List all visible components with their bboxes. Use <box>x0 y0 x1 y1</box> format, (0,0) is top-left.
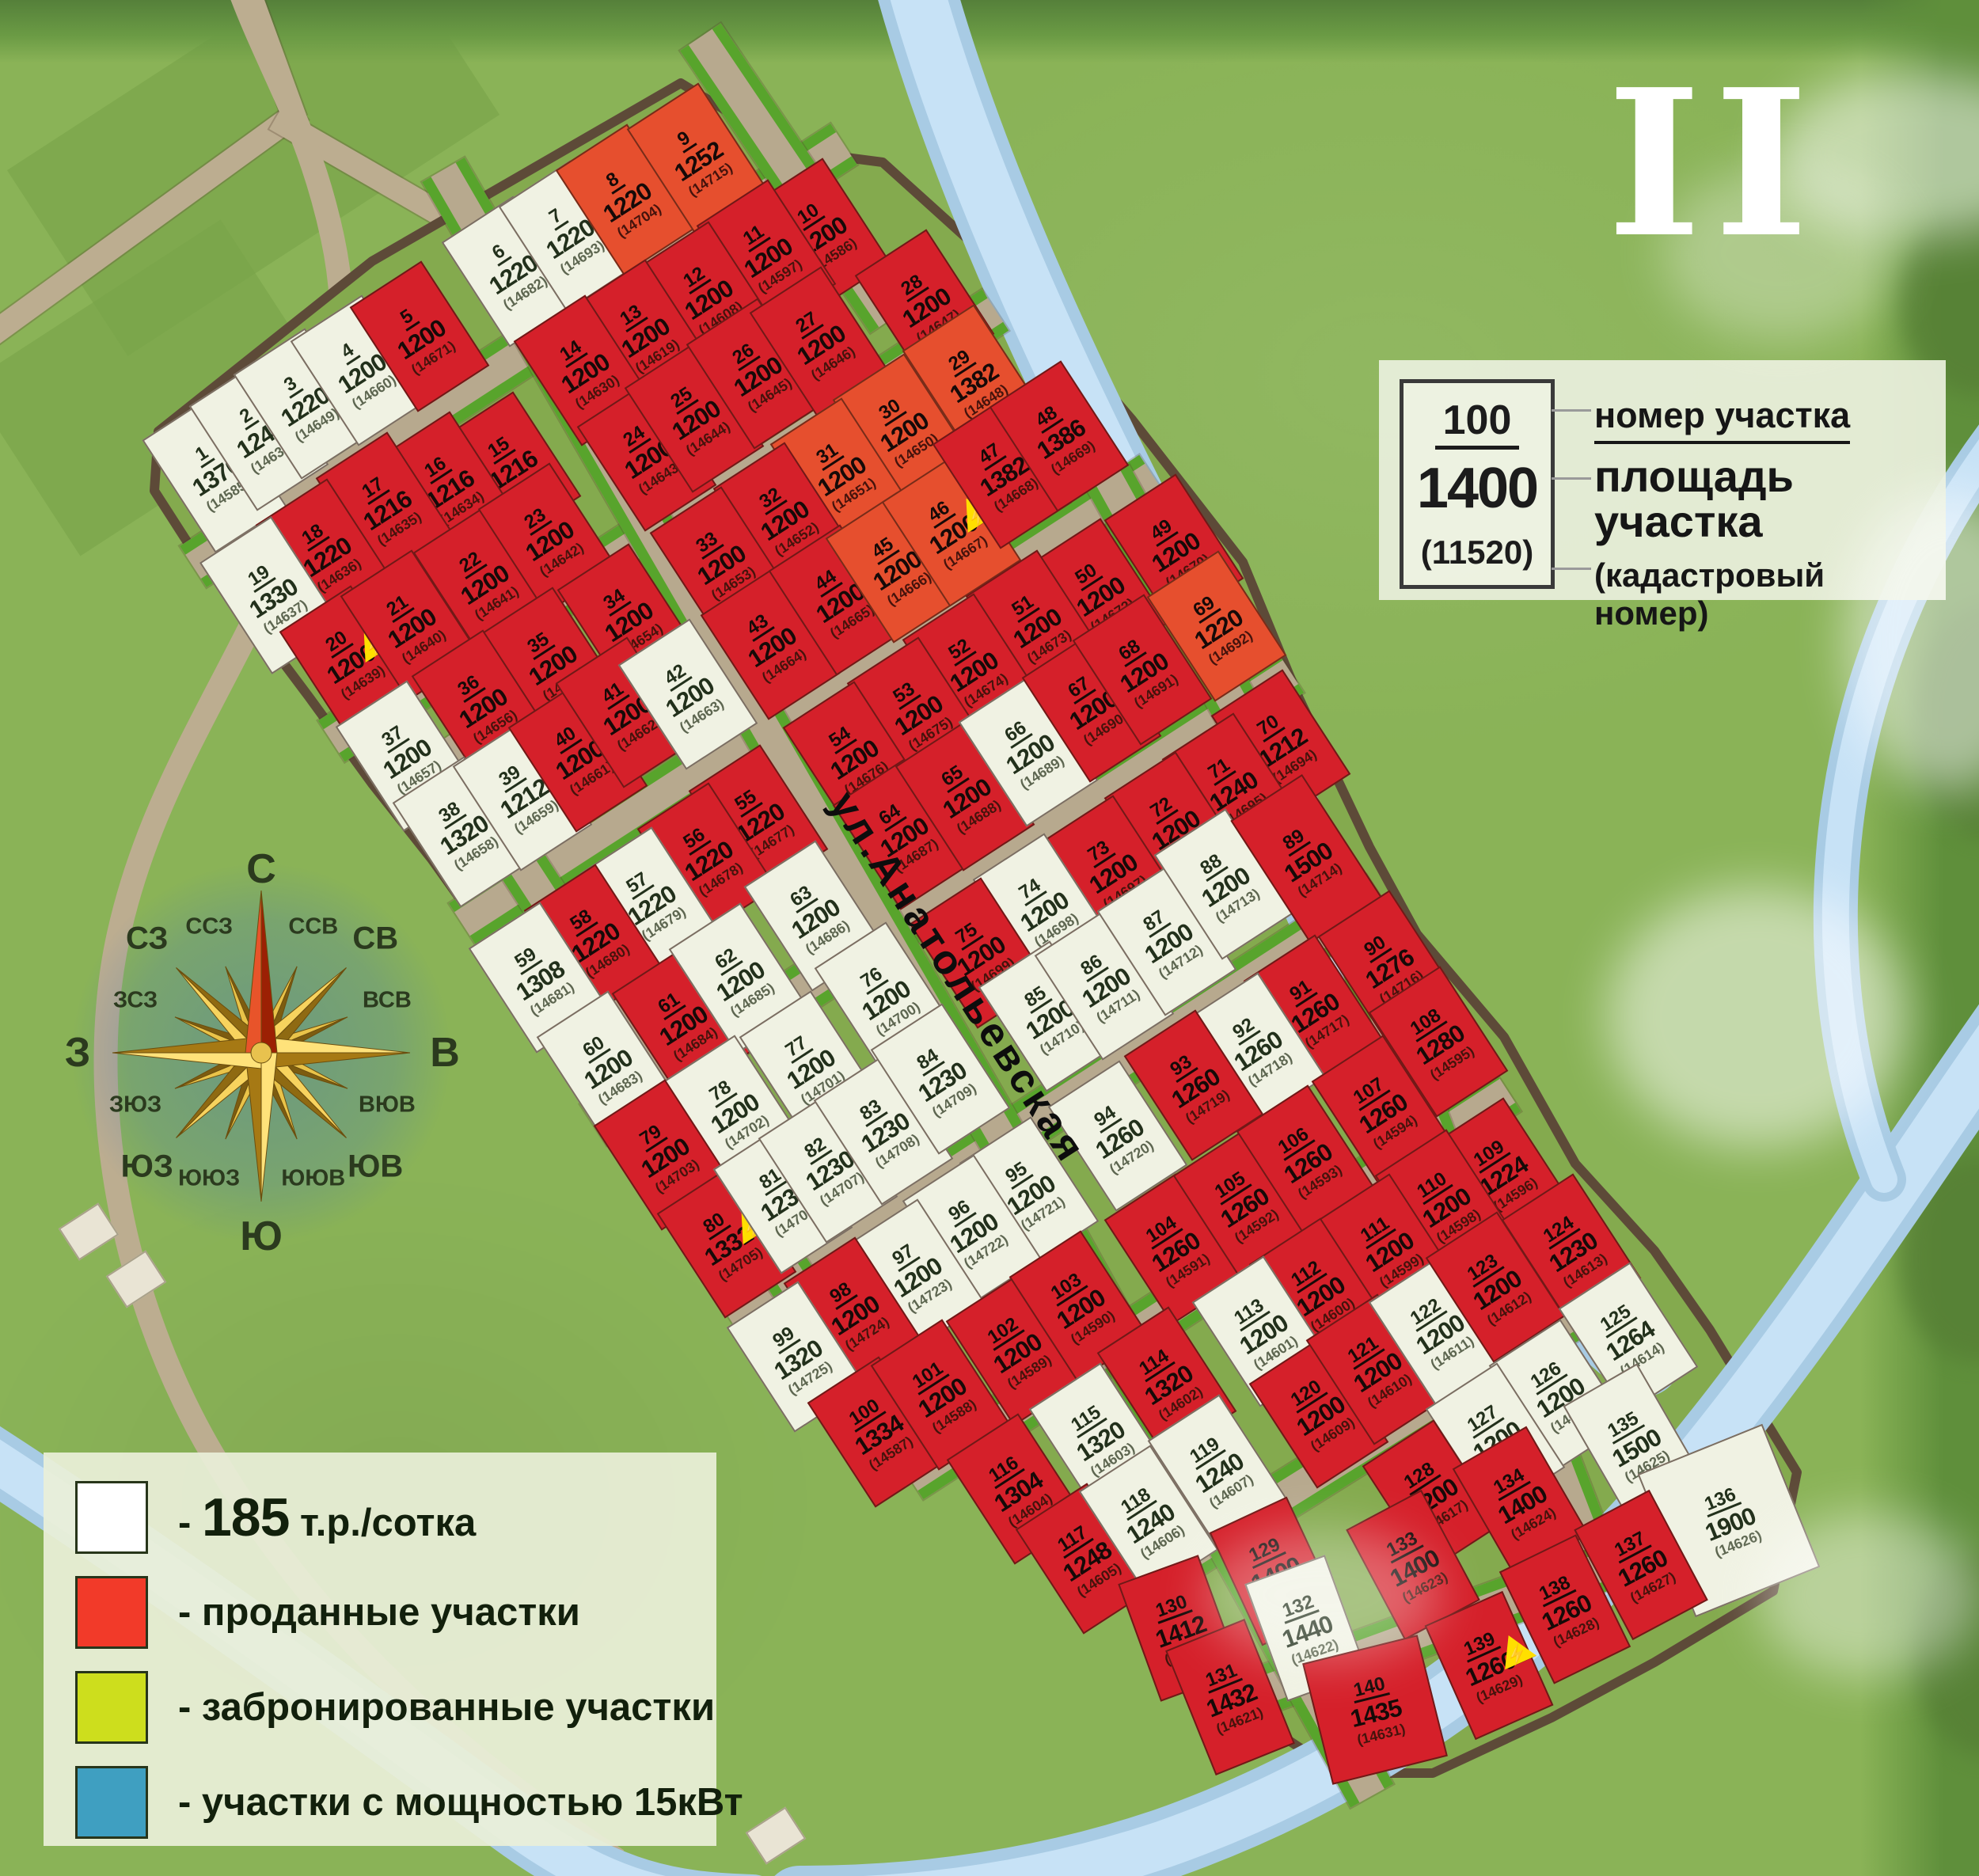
compass-label-ЮЮВ: ЮЮВ <box>281 1165 345 1191</box>
compass-label-З: З <box>65 1029 91 1077</box>
plot-140[interactable]: 1401435(14631) <box>1302 1635 1448 1785</box>
phase-numeral: II <box>1607 63 1821 265</box>
compass-label-ВСВ: ВСВ <box>363 988 412 1014</box>
legend-item: - участки с мощностью 15кВт <box>75 1766 743 1839</box>
compass-label-ССЗ: ССЗ <box>185 914 233 940</box>
legend-label: - участки с мощностью 15кВт <box>178 1780 743 1825</box>
legend-label: - проданные участки <box>178 1590 580 1635</box>
compass-label-ССВ: ССВ <box>288 914 338 940</box>
compass-label-СЗ: СЗ <box>126 921 168 956</box>
legend-swatch <box>75 1481 148 1554</box>
compass-label-ЮЗ: ЮЗ <box>121 1149 173 1185</box>
legend-swatch <box>75 1671 148 1744</box>
compass-rose: СССВСВВСВВВЮВЮВЮЮВЮЮЮЗЮЗЗЮЗЗЗСЗСЗССЗ <box>55 847 467 1259</box>
legend-label: - забронированные участки <box>178 1685 715 1730</box>
compass-label-ЮВ: ЮВ <box>348 1149 403 1185</box>
key-example-number: 100 <box>1435 397 1520 450</box>
compass-label-ЮЮЗ: ЮЮЗ <box>178 1165 240 1191</box>
legend-swatch <box>75 1766 148 1839</box>
compass-label-Ю: Ю <box>240 1213 283 1260</box>
compass-label-СВ: СВ <box>352 921 398 956</box>
legend-item: - проданные участки <box>75 1576 580 1649</box>
key-connector <box>1552 568 1591 570</box>
key-connector <box>1552 477 1591 480</box>
key-connector <box>1552 409 1591 412</box>
key-example-cadastral: (11520) <box>1421 534 1533 572</box>
map-key: 100 1400 (11520) номер участка площадь у… <box>1379 360 1946 600</box>
key-area-label: площадь участка <box>1594 454 1848 544</box>
key-cadastral-label: (кадастровый номер) <box>1594 556 1946 632</box>
legend-item: - забронированные участки <box>75 1671 715 1744</box>
compass-label-С: С <box>246 845 276 893</box>
key-example-plot: 100 1400 (11520) <box>1400 379 1555 589</box>
compass-label-ЗЮЗ: ЗЮЗ <box>109 1092 161 1118</box>
key-example-area: 1400 <box>1417 456 1537 521</box>
legend-label: - 185 т.р./сотка <box>178 1487 476 1548</box>
key-number-label: номер участка <box>1594 395 1850 444</box>
legend-swatch <box>75 1576 148 1649</box>
legend-item: - 185 т.р./сотка <box>75 1481 476 1554</box>
compass-label-В: В <box>430 1029 460 1077</box>
compass-label-ВЮВ: ВЮВ <box>359 1092 416 1118</box>
legend: - 185 т.р./сотка- проданные участки- заб… <box>44 1453 716 1846</box>
compass-label-ЗСЗ: ЗСЗ <box>113 988 158 1014</box>
compass-star <box>55 847 467 1259</box>
